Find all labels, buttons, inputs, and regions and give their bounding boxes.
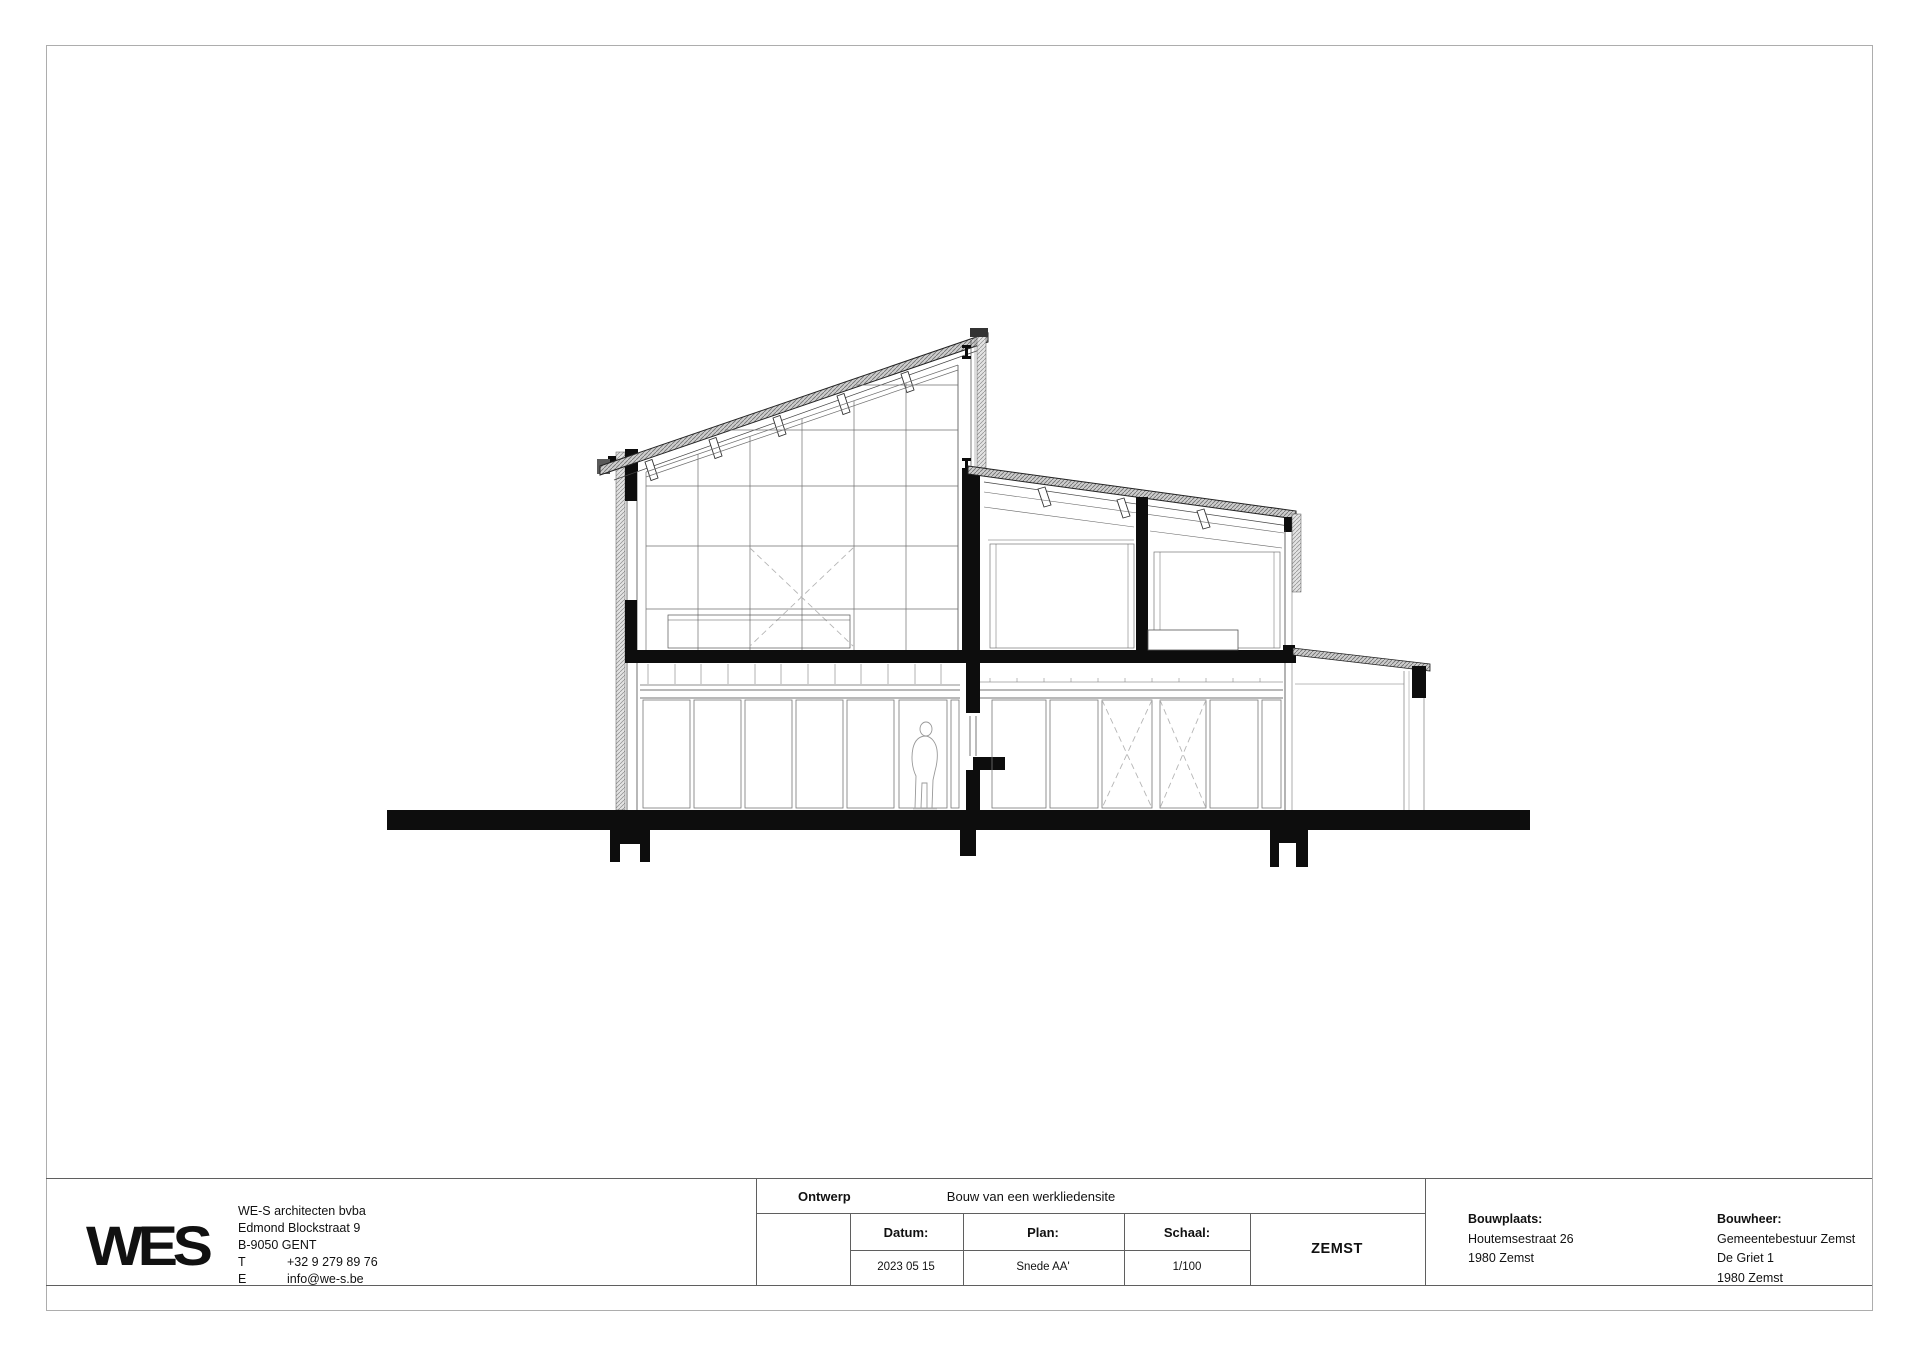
firm-city: B-9050 GENT [238, 1237, 378, 1254]
section-drawing-snede-aa [0, 0, 1920, 1358]
bouwheer-line1: Gemeentebestuur Zemst [1717, 1230, 1855, 1250]
titleblock-top-line [46, 1178, 1872, 1179]
joist-band [640, 664, 960, 685]
ontwerp-row-line [756, 1213, 1426, 1214]
phone-value: +32 9 279 89 76 [287, 1255, 378, 1269]
ground-slab [387, 810, 1530, 867]
email-label: E [238, 1271, 287, 1288]
bouwplaats-line1: Houtemsestraat 26 [1468, 1230, 1574, 1250]
divider-col3 [1124, 1213, 1125, 1285]
bouwplaats-line2: 1980 Zemst [1468, 1249, 1574, 1269]
west-facade [597, 449, 638, 810]
wes-logo: WES [86, 1224, 208, 1268]
bouwplaats-label: Bouwplaats: [1468, 1210, 1574, 1230]
hall-door-brace [750, 548, 853, 646]
drawing-sheet: WES WE-S architecten bvba Edmond Blockst… [0, 0, 1920, 1358]
firm-street: Edmond Blockstraat 9 [238, 1220, 378, 1237]
right-ground-glazing [980, 678, 1283, 808]
datum-label: Datum: [884, 1225, 929, 1240]
canopy [1293, 648, 1430, 810]
bouwplaats-block: Bouwplaats: Houtemsestraat 26 1980 Zemst [1468, 1210, 1574, 1269]
human-figure [912, 722, 937, 809]
datum-value: 2023 05 15 [877, 1261, 935, 1273]
divider-col1 [850, 1213, 851, 1285]
schaal-value: 1/100 [1173, 1261, 1202, 1273]
upper-storey-interior [984, 492, 1284, 648]
upper-low-box [1148, 630, 1238, 650]
firm-info: WE-S architecten bvba Edmond Blockstraat… [238, 1203, 378, 1288]
firm-email-row: Einfo@we-s.be [238, 1271, 378, 1288]
bouwheer-block: Bouwheer: Gemeentebestuur Zemst De Griet… [1717, 1210, 1855, 1288]
ontwerp-value: Bouw van een werkliedensite [947, 1189, 1115, 1204]
divider-zemst [1250, 1213, 1251, 1285]
phone-label: T [238, 1254, 287, 1271]
header-value-line [850, 1250, 1250, 1251]
upper-interior-wall [1136, 497, 1148, 650]
divider-site [1425, 1178, 1426, 1285]
plan-value: Snede AA' [1016, 1261, 1069, 1273]
bouwheer-label: Bouwheer: [1717, 1210, 1855, 1230]
email-value: info@we-s.be [287, 1272, 364, 1286]
central-wall [962, 471, 1005, 810]
firm-phone-row: T+32 9 279 89 76 [238, 1254, 378, 1271]
divider-firm [756, 1178, 757, 1285]
schaal-label: Schaal: [1164, 1225, 1210, 1240]
hall-bench-outline [668, 615, 850, 648]
hall-ground-glazing [640, 690, 960, 808]
gemeente-name: ZEMST [1311, 1241, 1363, 1257]
firm-name: WE-S architecten bvba [238, 1203, 378, 1220]
plan-label: Plan: [1027, 1225, 1059, 1240]
high-roof [600, 333, 988, 481]
ontwerp-label: Ontwerp [798, 1189, 851, 1204]
divider-col2 [963, 1213, 964, 1285]
floor-slab [625, 650, 1296, 663]
hall-curtain-wall-grid [646, 365, 958, 650]
bouwheer-line2: De Griet 1 [1717, 1249, 1855, 1269]
right-door-braces [1102, 700, 1206, 808]
low-roof [968, 466, 1301, 592]
clerestory-parapet [962, 328, 988, 471]
bouwheer-line3: 1980 Zemst [1717, 1269, 1855, 1289]
